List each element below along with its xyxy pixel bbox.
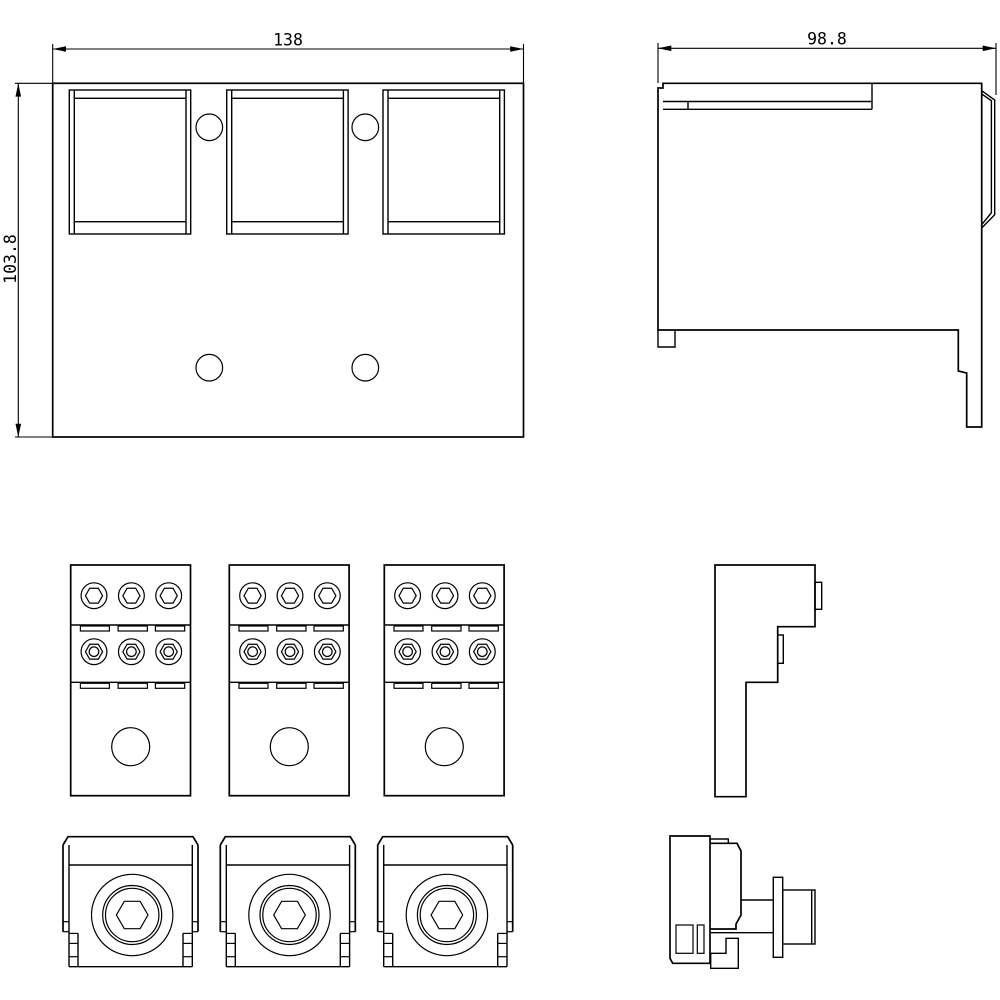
dimension-width-label: 138 [273,31,303,50]
terminal-block-side-view [715,565,822,797]
front-view-outline [53,83,524,437]
top-ledge [663,83,872,109]
cable-lug-side-view [670,836,815,968]
mounting-holes [196,114,379,381]
terminal-block-1 [71,565,191,796]
bottom-foot [658,330,675,347]
block-step-profile [715,565,815,797]
technical-drawing-canvas: 138 103.8 [0,0,1000,1000]
dimension-depth: 98.8 [658,30,996,96]
dimension-drawing: 138 103.8 [0,0,1000,1000]
arrow-up-icon [16,83,22,96]
window-cutout-1 [69,90,190,234]
terminal-block-3 [384,565,504,796]
hole-top-right [352,114,379,141]
arrow-left-icon [658,46,671,52]
dimension-width: 138 [53,31,524,84]
front-view: 138 103.8 [1,31,524,438]
cable-lug-2 [220,837,355,967]
arrow-left-icon [53,46,66,52]
lug-hook-foot [711,938,739,968]
arrow-right-icon [510,46,523,52]
hole-bottom-left [196,354,223,381]
side-view-outline [658,83,982,427]
bracket-slot-2 [697,925,704,953]
bracket-slot-1 [676,925,693,953]
arrow-down-icon [16,424,22,437]
side-channel [982,91,995,228]
dimension-height-label: 103.8 [1,234,20,284]
cable-lug-3 [378,837,513,967]
screw-flange [773,877,782,957]
window-cutout-3 [383,90,504,234]
side-view: 98.8 [658,30,996,428]
dimension-height: 103.8 [1,83,53,437]
dimension-depth-label: 98.8 [807,30,847,49]
window-cutout-2 [227,90,348,234]
block-tab-upper [815,582,822,609]
lug-body-profile [710,843,741,929]
cable-lug-1 [63,837,198,967]
screw-head [783,890,815,944]
hole-bottom-right [352,354,379,381]
hole-top-left [196,114,223,141]
arrow-right-icon [983,46,996,52]
terminal-block-2 [229,565,349,796]
